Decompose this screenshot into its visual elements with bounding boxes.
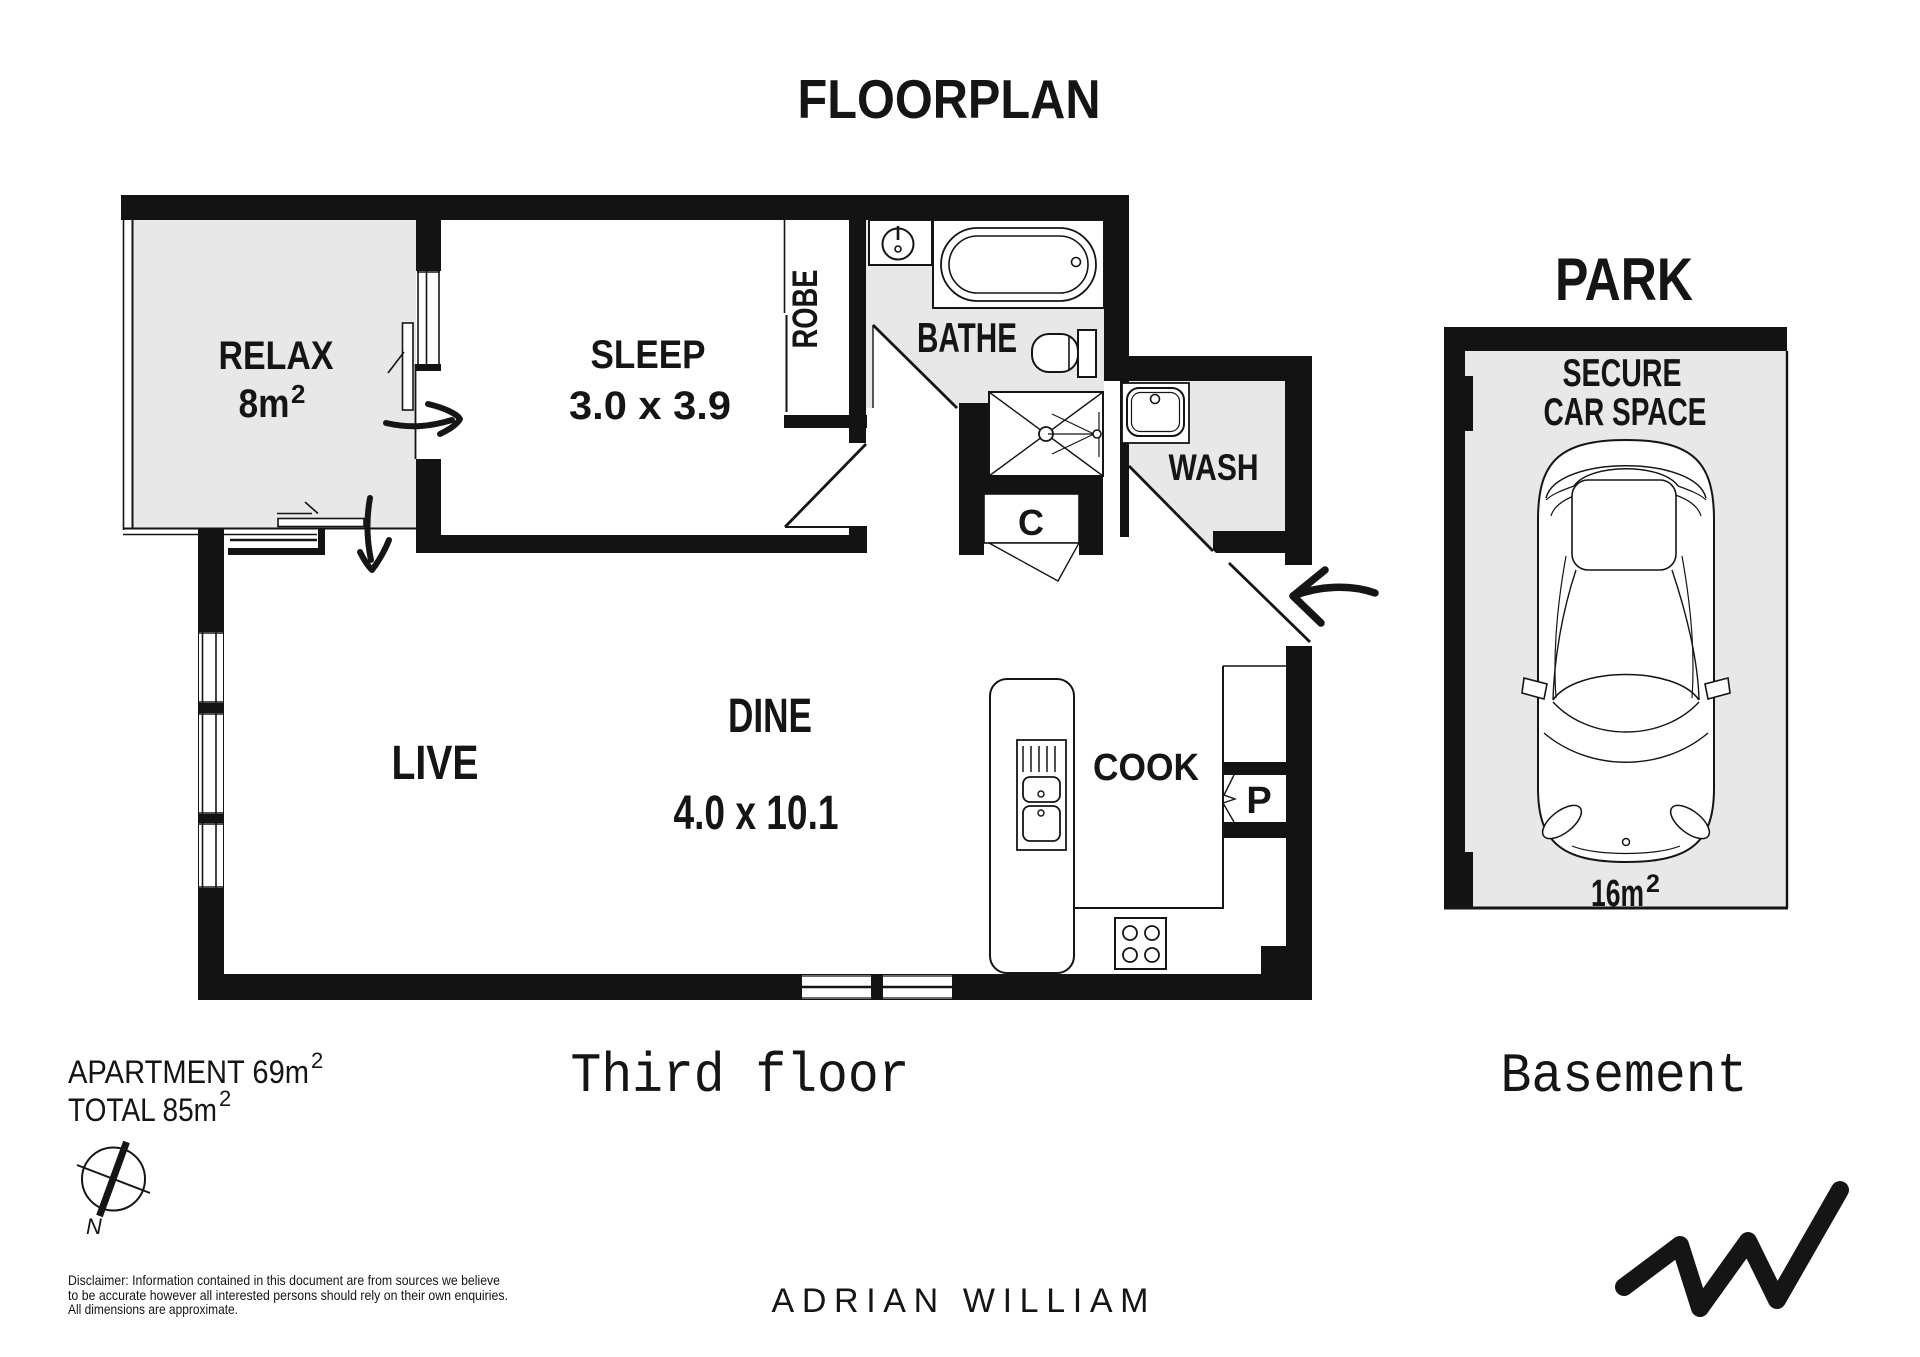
svg-text:Disclaimer: Information contai: Disclaimer: Information contained in thi… [68,1272,500,1288]
svg-text:BATHE: BATHE [917,314,1017,361]
svg-text:ADRIAN WILLIAM: ADRIAN WILLIAM [772,1282,1149,1320]
svg-text:2: 2 [1646,870,1660,898]
svg-text:DINE: DINE [728,690,812,743]
svg-text:Third floor: Third floor [571,1044,910,1108]
svg-text:2: 2 [291,379,305,409]
svg-text:C: C [1018,502,1044,543]
svg-text:2: 2 [311,1048,323,1073]
svg-text:SECURE: SECURE [1563,352,1682,395]
svg-text:COOK: COOK [1093,747,1200,789]
svg-text:CAR SPACE: CAR SPACE [1544,391,1707,434]
svg-text:4.0 x 10.1: 4.0 x 10.1 [674,787,839,840]
svg-text:SLEEP: SLEEP [591,333,706,377]
svg-text:WASH: WASH [1169,447,1259,488]
svg-text:All dimensions are approximate: All dimensions are approximate. [68,1301,238,1317]
svg-text:8m: 8m [239,382,290,426]
svg-text:PARK: PARK [1555,246,1693,313]
svg-text:3.0 x 3.9: 3.0 x 3.9 [569,384,731,428]
svg-text:LIVE: LIVE [392,737,479,790]
svg-text:Basement: Basement [1501,1044,1748,1108]
svg-text:TOTAL 85m: TOTAL 85m [68,1092,217,1128]
svg-text:FLOORPLAN: FLOORPLAN [798,68,1101,130]
svg-text:2: 2 [219,1086,231,1111]
svg-text:ROBE: ROBE [786,270,825,349]
svg-text:RELAX: RELAX [219,334,334,378]
svg-text:APARTMENT 69m: APARTMENT 69m [68,1054,309,1090]
svg-text:16m: 16m [1591,873,1644,915]
svg-text:P: P [1246,780,1271,822]
svg-text:N: N [86,1214,102,1239]
